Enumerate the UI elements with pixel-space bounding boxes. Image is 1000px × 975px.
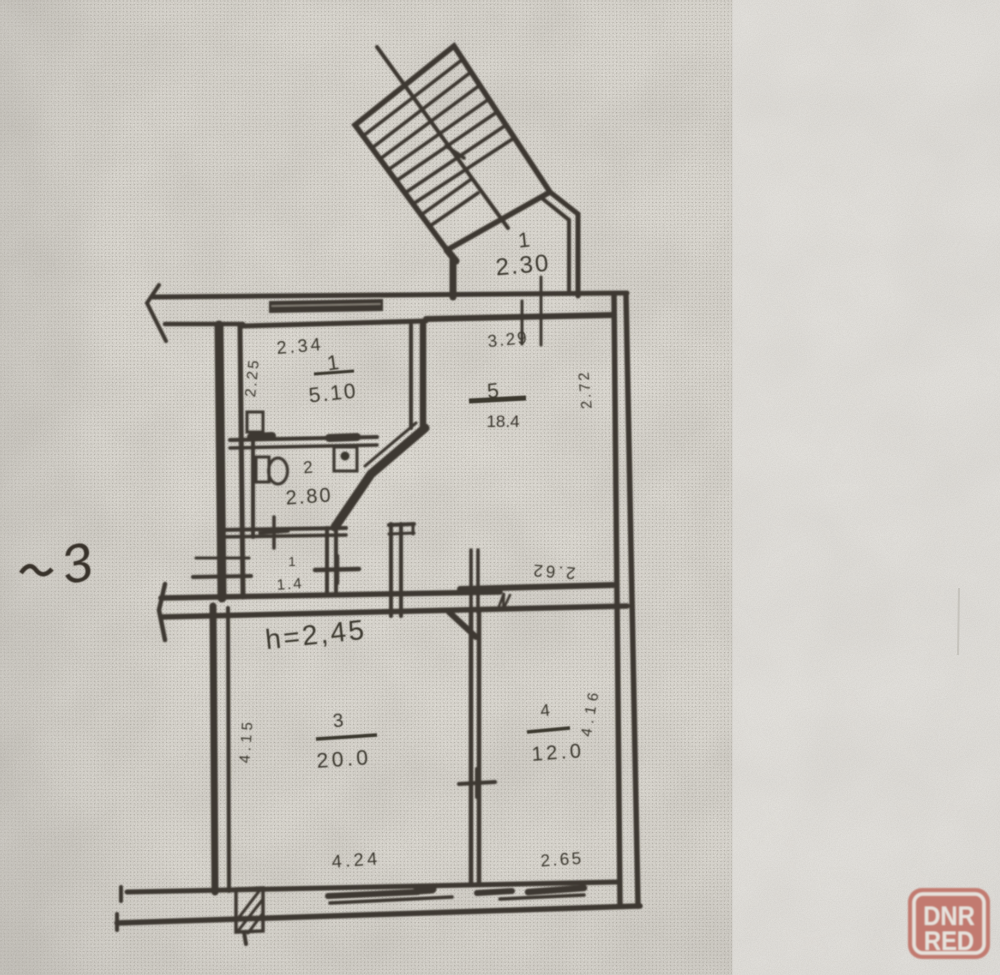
svg-text:12.0: 12.0 [531, 740, 585, 766]
svg-text:2.34: 2.34 [276, 334, 325, 358]
svg-text:2.30: 2.30 [495, 250, 552, 282]
svg-text:20.0: 20.0 [316, 746, 372, 773]
svg-text:2.80: 2.80 [285, 484, 333, 509]
svg-text:18.4: 18.4 [486, 412, 519, 431]
svg-text:2.62: 2.62 [530, 560, 576, 582]
svg-text:1: 1 [517, 228, 531, 252]
svg-text:2.65: 2.65 [540, 849, 584, 871]
svg-text:2: 2 [302, 458, 313, 478]
svg-text:4.24: 4.24 [331, 848, 381, 871]
svg-text:4: 4 [539, 701, 550, 721]
svg-text:4.15: 4.15 [236, 718, 256, 764]
svg-text:RED: RED [924, 927, 974, 957]
svg-text:3: 3 [332, 710, 345, 732]
svg-text:1: 1 [288, 554, 295, 569]
svg-text:1.4: 1.4 [276, 575, 304, 594]
svg-text:2.72: 2.72 [575, 369, 595, 410]
